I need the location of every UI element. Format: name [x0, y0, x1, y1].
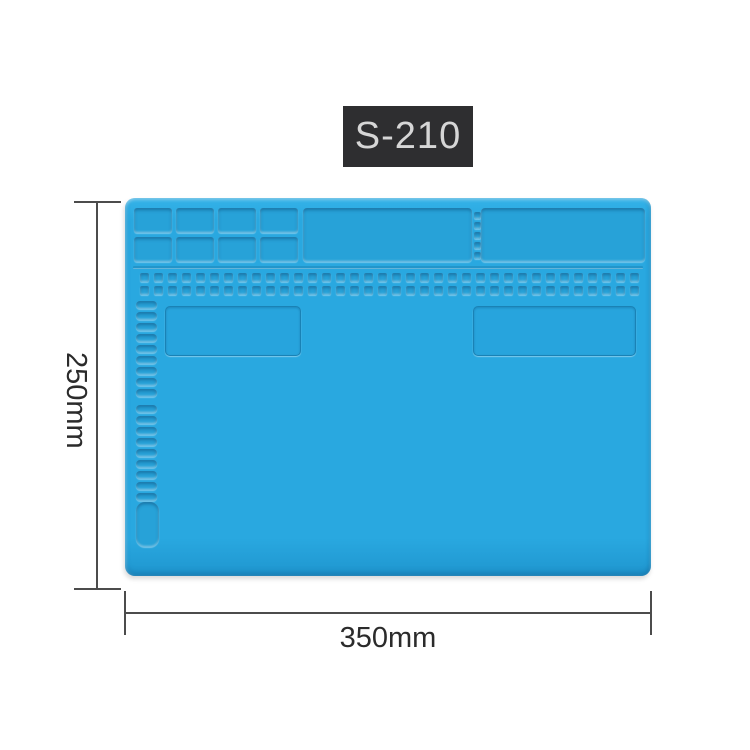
screw-square-cell: [574, 286, 583, 295]
screw-pill-slot: [136, 334, 157, 342]
screw-square-cell: [434, 273, 443, 282]
height-dimension-label: 250mm: [59, 352, 92, 449]
screw-square-cell: [238, 273, 247, 282]
screw-square-cell: [364, 273, 373, 282]
height-dimension-tick-top: [74, 201, 121, 203]
height-dimension-line: [96, 202, 98, 589]
screw-pill-slot: [136, 356, 157, 364]
screw-square-cell: [490, 273, 499, 282]
screw-square-cell: [504, 273, 513, 282]
marking-rectangle-left: [165, 306, 301, 356]
screw-pill-slot: [136, 482, 157, 490]
screw-square-cell: [210, 286, 219, 295]
width-dimension-label: 350mm: [125, 622, 651, 655]
screw-pill-slot: [136, 367, 157, 375]
parts-cell: [176, 208, 214, 233]
screw-pill-slot: [136, 378, 157, 386]
screw-square-cell: [168, 286, 177, 295]
top-section-groove: [133, 266, 643, 269]
screw-square-cell: [224, 273, 233, 282]
screw-square-cell: [588, 286, 597, 295]
screw-square-cell: [574, 273, 583, 282]
screw-square-cell: [490, 286, 499, 295]
screw-square-cell: [588, 273, 597, 282]
divider-notch: [474, 222, 481, 229]
screw-square-cell: [224, 286, 233, 295]
parts-cell-grid: [134, 208, 298, 262]
parts-tray-left: [303, 208, 472, 262]
screw-square-cell: [560, 273, 569, 282]
screw-square-cell: [476, 273, 485, 282]
screw-square-cell: [532, 286, 541, 295]
screw-square-cell: [168, 273, 177, 282]
parts-cell: [176, 237, 214, 262]
parts-cell: [134, 208, 172, 233]
screw-square-cell: [322, 286, 331, 295]
screw-square-cell: [294, 273, 303, 282]
height-dimension-tick-bottom: [74, 588, 121, 590]
screw-square-cell: [182, 286, 191, 295]
model-badge: S-210: [343, 106, 473, 167]
screw-square-cell: [392, 286, 401, 295]
parts-cell: [260, 208, 298, 233]
screw-pill-slot: [136, 345, 157, 353]
screw-square-cell: [154, 286, 163, 295]
product-image-canvas: S-210 250mm 350mm: [0, 0, 750, 750]
parts-cell: [218, 237, 256, 262]
model-badge-label: S-210: [355, 115, 461, 158]
screw-square-cell: [420, 286, 429, 295]
screw-pill-column-lower: [136, 405, 157, 501]
screw-square-cell: [154, 273, 163, 282]
divider-notch: [474, 242, 481, 249]
screw-square-cell: [462, 286, 471, 295]
screw-pill-slot: [136, 460, 157, 468]
screw-square-cell: [336, 273, 345, 282]
screw-square-cell: [518, 273, 527, 282]
screw-pill-slot: [136, 312, 157, 320]
tray-divider-notches: [474, 212, 481, 259]
screw-square-cell: [546, 273, 555, 282]
screw-pill-slot: [136, 416, 157, 424]
screw-square-cell: [266, 273, 275, 282]
tool-slot: [136, 502, 159, 547]
divider-notch: [474, 212, 481, 219]
screw-square-cell: [434, 286, 443, 295]
screw-square-cell: [140, 273, 149, 282]
screw-pill-slot: [136, 405, 157, 413]
screw-square-cell: [252, 286, 261, 295]
screw-pill-slot: [136, 301, 157, 309]
screw-square-cell: [196, 273, 205, 282]
screw-pill-column-upper: [136, 301, 157, 397]
divider-notch: [474, 232, 481, 239]
screw-square-cell: [378, 273, 387, 282]
screw-square-cell: [406, 273, 415, 282]
soldering-mat: [125, 198, 651, 576]
screw-pill-slot: [136, 323, 157, 331]
screw-square-cell: [616, 286, 625, 295]
screw-pill-slot: [136, 471, 157, 479]
width-dimension-line: [125, 612, 651, 614]
screw-square-cell: [602, 273, 611, 282]
parts-cell: [260, 237, 298, 262]
screw-pill-slot: [136, 493, 157, 501]
screw-square-cell: [140, 286, 149, 295]
screw-square-row-1: [140, 273, 639, 282]
screw-square-cell: [364, 286, 373, 295]
screw-square-cell: [448, 286, 457, 295]
screw-square-cell: [266, 286, 275, 295]
screw-square-cell: [196, 286, 205, 295]
screw-square-cell: [406, 286, 415, 295]
screw-square-cell: [532, 273, 541, 282]
marking-rectangle-right: [473, 306, 636, 356]
screw-square-cell: [350, 286, 359, 295]
screw-square-cell: [280, 273, 289, 282]
screw-square-cell: [294, 286, 303, 295]
divider-notch: [474, 252, 481, 259]
screw-square-cell: [630, 286, 639, 295]
screw-square-cell: [504, 286, 513, 295]
screw-square-cell: [308, 286, 317, 295]
screw-pill-slot: [136, 438, 157, 446]
screw-square-cell: [476, 286, 485, 295]
screw-square-cell: [560, 286, 569, 295]
screw-square-cell: [182, 273, 191, 282]
parts-tray-right: [481, 208, 645, 262]
parts-cell: [218, 208, 256, 233]
screw-square-row-2: [140, 286, 639, 295]
screw-square-cell: [602, 286, 611, 295]
screw-square-cell: [462, 273, 471, 282]
screw-square-cell: [518, 286, 527, 295]
screw-square-cell: [252, 273, 261, 282]
screw-square-cell: [322, 273, 331, 282]
screw-square-cell: [308, 273, 317, 282]
screw-pill-slot: [136, 427, 157, 435]
screw-square-cell: [238, 286, 247, 295]
screw-square-cell: [280, 286, 289, 295]
screw-square-cell: [350, 273, 359, 282]
screw-square-cell: [210, 273, 219, 282]
screw-square-cell: [630, 273, 639, 282]
screw-square-cell: [420, 273, 429, 282]
screw-square-cell: [448, 273, 457, 282]
screw-square-cell: [546, 286, 555, 295]
screw-square-cell: [336, 286, 345, 295]
screw-pill-slot: [136, 389, 157, 397]
screw-square-cell: [392, 273, 401, 282]
screw-square-cell: [616, 273, 625, 282]
screw-square-cell: [378, 286, 387, 295]
screw-pill-slot: [136, 449, 157, 457]
parts-cell: [134, 237, 172, 262]
